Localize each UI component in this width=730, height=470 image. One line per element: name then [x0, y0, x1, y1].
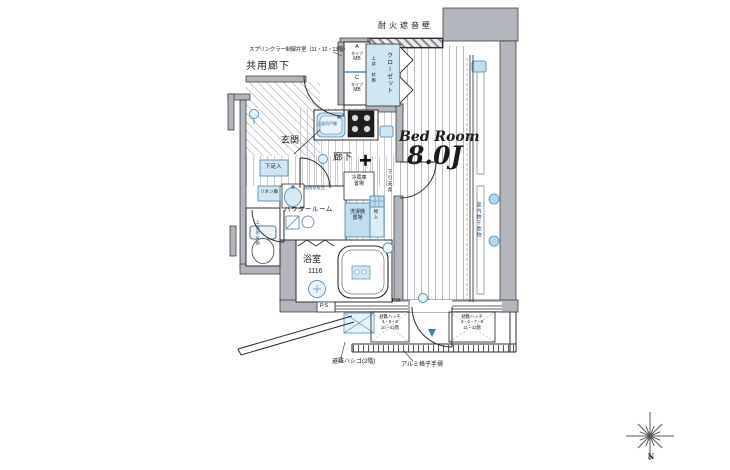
closet-upper-label: 上部:枕棚	[371, 56, 376, 100]
water-heater-icon	[370, 196, 384, 207]
linen-label: リネン庫	[260, 190, 278, 195]
bathroom-size-label: 1116	[308, 268, 323, 276]
ladder-label: 避難ハシゴ(2階)	[332, 359, 375, 366]
toilet-fixture	[250, 226, 276, 264]
vanity-label: 洗面化粧台	[304, 186, 325, 191]
dropped-ceiling-label: 下り天井	[386, 169, 392, 201]
air-conditioner-icon	[472, 61, 486, 72]
round-marker-icon	[383, 243, 393, 253]
meter-box-a-label: A タイプ MB	[344, 44, 370, 62]
round-marker-icon	[250, 110, 259, 119]
refrigerator-label: 冷蔵庫 置場	[344, 175, 374, 188]
compass-north-label: N	[644, 453, 658, 461]
drying-hook-icon	[489, 194, 499, 204]
common-corridor-label: 共用廊下	[246, 61, 290, 72]
drying-hook-icon	[489, 236, 499, 246]
wall-right	[500, 41, 516, 312]
floorplan-page: 耐火遮音壁 スプリンクラー制御弁室（11・12・13階） 共用廊下 A タイプ …	[0, 0, 730, 470]
meter-box-c-label: C タイプ MB	[344, 75, 370, 93]
closet-label: クローゼット	[385, 52, 392, 104]
washer-label: 洗濯機 置場	[345, 209, 370, 222]
window-frame-1	[477, 66, 484, 174]
small-storage-label: 物入	[373, 209, 378, 233]
handrail-label: アルミ格子手摺	[401, 362, 443, 369]
remote-controller-icon	[380, 126, 393, 137]
round-marker-icon	[319, 155, 328, 164]
wall-top-right-block	[443, 8, 518, 41]
balcony-door	[412, 307, 452, 347]
powder-room-label: パウダールーム	[284, 206, 333, 213]
fire-wall-label: 耐火遮音壁	[378, 22, 433, 31]
bathroom-label: 浴室	[303, 255, 321, 265]
round-marker-icon	[419, 294, 428, 303]
pipe-space-label: P.S	[320, 303, 328, 309]
laundry-pole-icon	[428, 329, 436, 337]
kitchen-shelf-label: 上部吊戸棚	[317, 122, 337, 126]
bedroom-size-label: 8.0J	[407, 142, 462, 170]
indoor-drying-label: 室内物干金物	[475, 202, 481, 248]
sprinkler-note: スプリンクラー制御弁室（11・12・13階）	[249, 47, 348, 53]
escape-hatch-right-label: 避難ハッチ 3・5・7・9 11・13階	[449, 314, 495, 330]
stove-icon	[348, 111, 374, 137]
escape-hatch-left-label: 避難ハッチ 4・6・8 10・12階	[371, 314, 409, 330]
toilet-shelf-label: 上部吊戸棚	[255, 220, 260, 254]
wall-left	[240, 100, 246, 266]
fix-window-label: FIX	[392, 298, 401, 304]
shoe-box-label: 下足入	[265, 164, 282, 170]
entrance-label: 玄関	[281, 136, 299, 146]
closet-folding-doors	[400, 47, 413, 103]
toilet-tank-icon	[250, 226, 276, 239]
corridor-label: 廊下	[333, 153, 352, 163]
floorplan-svg	[0, 0, 730, 470]
